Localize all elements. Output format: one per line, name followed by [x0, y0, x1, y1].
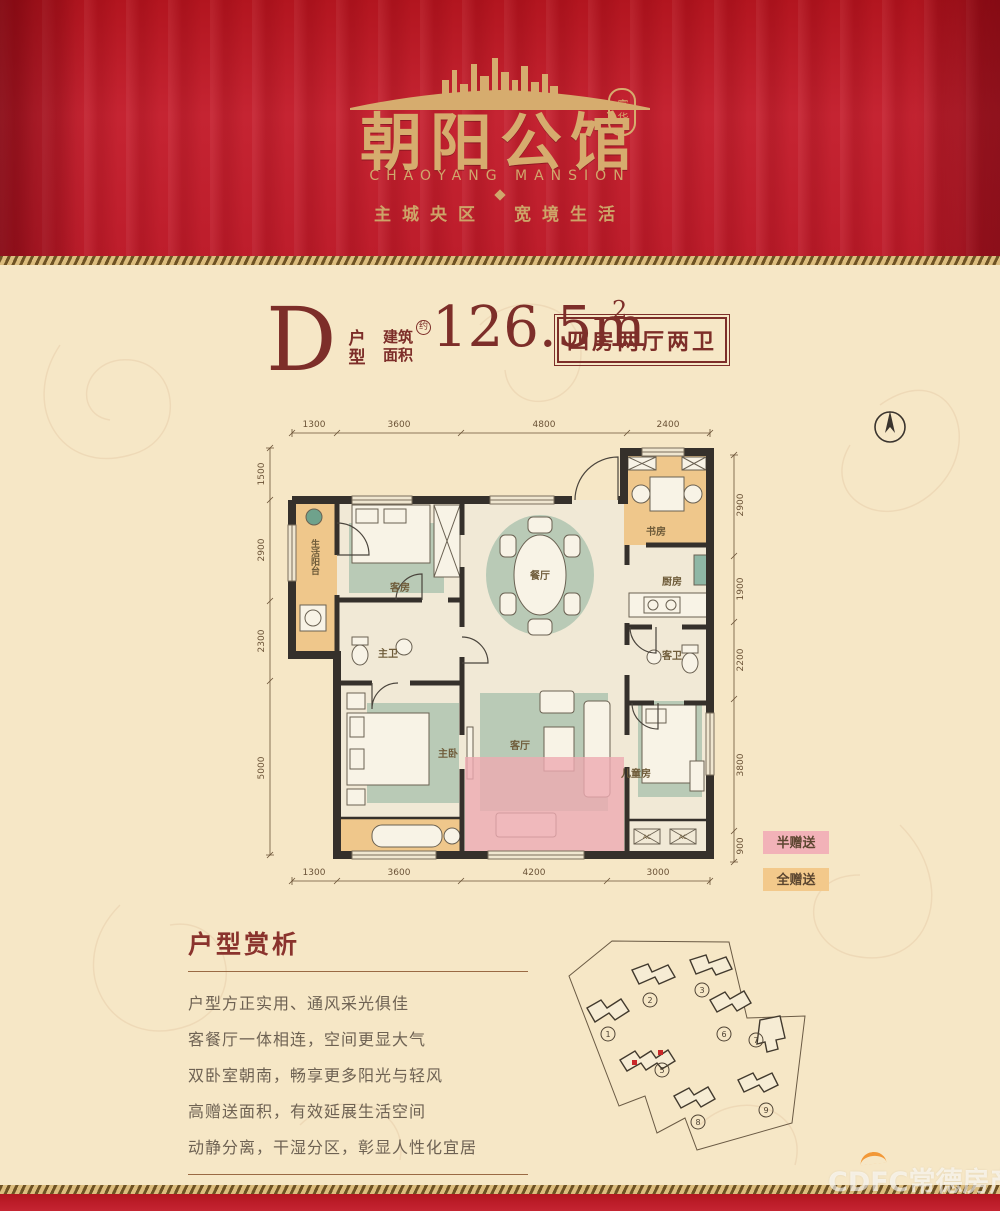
dim-left-2: 2900	[257, 538, 267, 561]
area-approx-note: 约	[416, 320, 431, 335]
dim-left-1: 1500	[257, 462, 267, 485]
watermark-brand: CDFC	[828, 1167, 909, 1198]
unit-suffix-bottom: 型	[347, 349, 367, 368]
building-number-8: 8	[695, 1118, 700, 1127]
building-number-3: 3	[699, 986, 704, 995]
analysis-divider-top	[188, 971, 528, 972]
dim-left-3: 2300	[257, 629, 267, 652]
unit-suffix-top: 户	[347, 330, 367, 349]
dim-right-4: 3800	[736, 753, 746, 776]
legend-full-gift: 全赠送	[763, 868, 833, 892]
dim-right-2: 1900	[736, 577, 746, 600]
dim-top-3: 4800	[533, 420, 556, 430]
logo-subtitle: CHAOYANG MANSION	[0, 168, 1000, 184]
north-compass-icon	[868, 405, 912, 449]
unit-type-letter: D	[266, 296, 337, 384]
room-label-kitchen: 厨房	[662, 575, 682, 588]
half-gift-overlay	[465, 757, 624, 853]
room-label-guest: 客房	[389, 581, 410, 594]
analysis-line: 高赠送面积，有效延展生活空间	[188, 1094, 533, 1130]
legend-half-gift: 半赠送	[763, 831, 833, 855]
legend-half-gift-label: 半赠送	[776, 835, 816, 851]
building-number-1: 1	[605, 1030, 610, 1039]
area-label-bottom: 面积	[382, 346, 414, 364]
room-label-guest-bath: 客卫	[661, 649, 682, 662]
area-label-top: 建筑	[382, 328, 414, 346]
room-label-dining: 餐厅	[529, 569, 550, 582]
room-label-balcony: 生活阳台	[309, 538, 320, 576]
analysis-line: 动静分离，干湿分区，彰显人性化宜居	[188, 1130, 533, 1166]
unit-type-suffix: 户 型	[347, 330, 367, 368]
room-label-study: 书房	[646, 525, 666, 538]
analysis-lines: 户型方正实用、通风采光俱佳 客餐厅一体相连，空间更显大气 双卧室朝南，畅享更多阳…	[188, 986, 533, 1166]
room-label-kids: 儿童房	[620, 767, 651, 780]
gift-legend: 半赠送 全赠送	[763, 831, 833, 905]
floorplan: AC AC 生活阳台 客房 餐厅 书房 厨房 主卫 客卫 主卧 客厅 儿童房	[252, 405, 752, 905]
building-number-6: 6	[721, 1030, 726, 1039]
building-number-5: 5	[659, 1066, 664, 1075]
dim-bottom-3: 4200	[523, 868, 546, 878]
dim-left-4: 5000	[257, 756, 267, 779]
ac-label: AC	[643, 834, 651, 841]
dim-right-5: 900	[736, 837, 746, 854]
building-number-2: 2	[647, 996, 652, 1005]
area-label: 建筑 面积	[382, 328, 414, 364]
analysis-line: 户型方正实用、通风采光俱佳	[188, 986, 533, 1022]
rope-border-top	[0, 256, 1000, 265]
legend-full-gift-label: 全赠送	[775, 872, 816, 888]
watermark-name: 常德房产	[909, 1167, 1000, 1198]
room-label-master-bath: 主卫	[378, 647, 398, 660]
dim-bottom-1: 1300	[303, 868, 326, 878]
logo-slogan: 主城央区 宽境生活	[0, 200, 1000, 225]
dim-top-4: 2400	[657, 420, 680, 430]
logo-seal: 富华	[608, 88, 636, 136]
room-label-living: 客厅	[509, 739, 530, 752]
siteplan: 1 2 3 5 6 7 8 9	[552, 938, 862, 1163]
dim-bottom-4: 3000	[647, 868, 670, 878]
siteplan-buildings	[587, 955, 785, 1108]
analysis-divider-bottom	[188, 1174, 528, 1175]
building-number-7: 7	[753, 1036, 758, 1045]
building-number-9: 9	[763, 1106, 768, 1115]
ac-label: AC	[679, 834, 687, 841]
dim-top-2: 3600	[388, 420, 411, 430]
dim-right-3: 2200	[736, 648, 746, 671]
dim-bottom-2: 3600	[388, 868, 411, 878]
dim-right-1: 2900	[736, 493, 746, 516]
room-label-master: 主卧	[438, 747, 458, 760]
poster-page: 朝阳公馆 富华 CHAOYANG MANSION 主城央区 宽境生活 D 户 型…	[0, 0, 1000, 1211]
dim-top-1: 1300	[303, 420, 326, 430]
analysis-line: 客餐厅一体相连，空间更显大气	[188, 1022, 533, 1058]
red-curtain-header: 朝阳公馆 富华 CHAOYANG MANSION 主城央区 宽境生活	[0, 0, 1000, 256]
analysis-section: 户型赏析 户型方正实用、通风采光俱佳 客餐厅一体相连，空间更显大气 双卧室朝南，…	[188, 925, 533, 1175]
analysis-title: 户型赏析	[188, 925, 533, 961]
developer-watermark: CDFC常德房产	[828, 1160, 1000, 1199]
layout-badge: 四房两厅两卫	[557, 317, 727, 363]
analysis-line: 双卧室朝南，畅享更多阳光与轻风	[188, 1058, 533, 1094]
diamond-ornament-icon	[494, 189, 505, 200]
